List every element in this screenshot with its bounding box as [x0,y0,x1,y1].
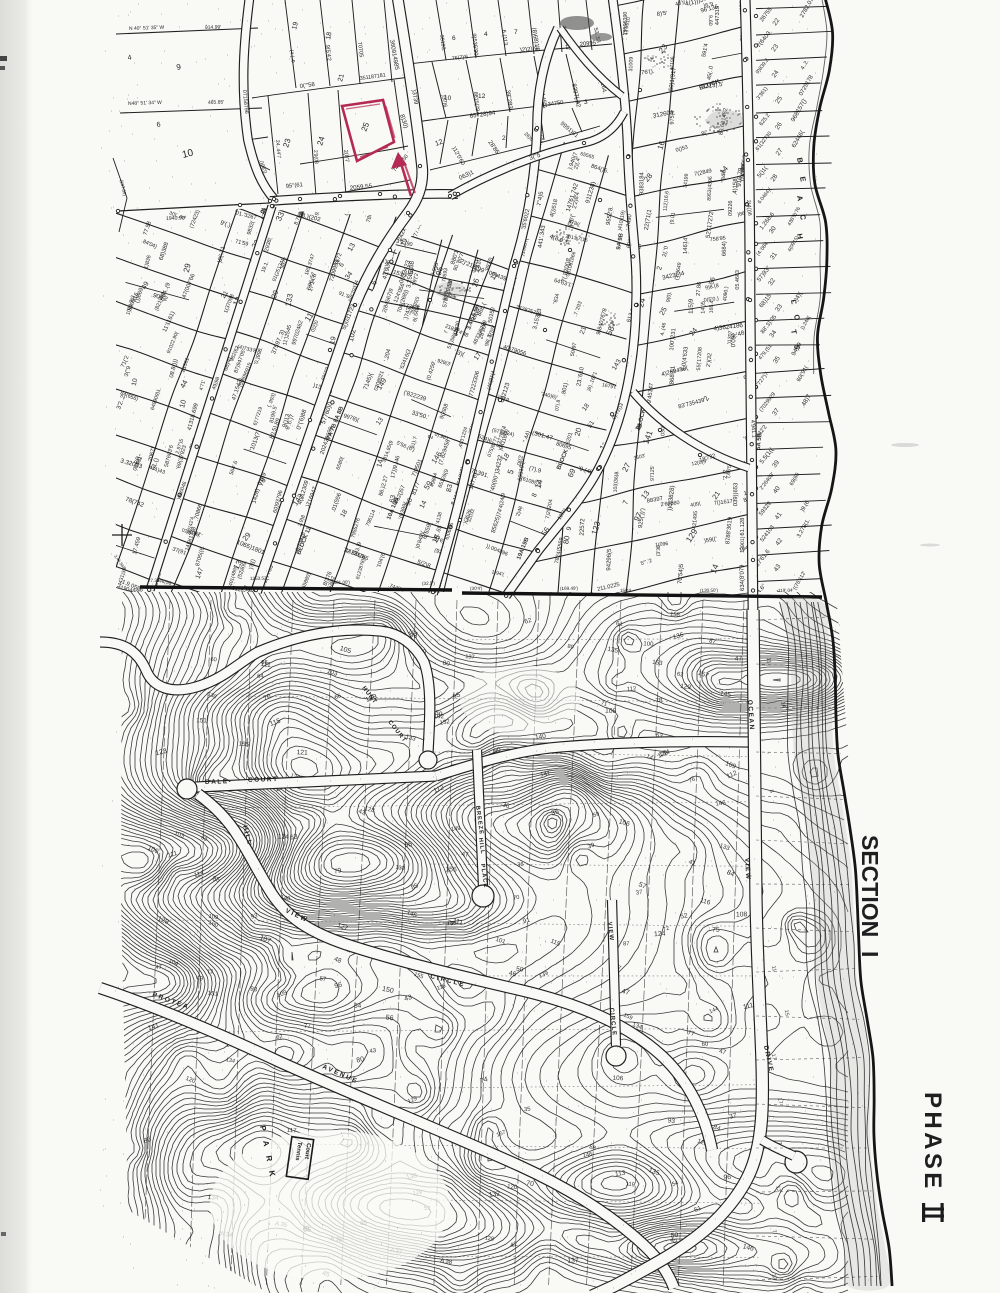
svg-text:97125': 97125' [650,465,656,481]
svg-text:108: 108 [736,911,748,918]
svg-text:47196: 47196 [669,56,676,71]
svg-text:COURT: COURT [248,776,279,784]
svg-text:50: 50 [516,966,525,974]
svg-text:PHASE: PHASE [919,1092,946,1192]
svg-text:60: 60 [210,657,217,663]
svg-text:54: 54 [354,1003,362,1010]
svg-text:I: I [857,951,883,957]
svg-text:155: 155 [238,741,249,749]
svg-text:62: 62 [276,1034,283,1041]
svg-text:151: 151 [196,717,207,724]
svg-text:N 40° 51′ 35″ W: N 40° 51′ 35″ W [129,25,165,32]
svg-text:121: 121 [297,749,309,756]
svg-text:SECTION: SECTION [857,835,883,937]
svg-text:31009: 31009 [628,57,635,72]
svg-text:11: 11 [765,657,772,664]
svg-text:35: 35 [524,1107,532,1114]
svg-text:72: 72 [207,969,214,976]
svg-text:112: 112 [627,686,637,693]
svg-text:0'09(: 0'09( [730,333,737,348]
svg-text:05.4683: 05.4683 [735,270,741,290]
svg-text:(130.50′): (130.50′) [700,588,719,593]
svg-text:155: 155 [445,866,457,873]
svg-text:106: 106 [605,708,617,715]
svg-text:100: 100 [643,640,654,648]
svg-text:94296(5: 94296(5 [606,548,613,571]
svg-text:12: 12 [478,93,486,100]
svg-text:15: 15 [783,1009,790,1016]
svg-text:47: 47 [735,656,743,663]
svg-text:124: 124 [278,833,290,841]
svg-text:17: 17 [776,1097,783,1104]
svg-text:13: 13 [774,1185,781,1192]
svg-text:27.86: 27.86 [696,282,703,297]
svg-text:09''6: 09''6 [708,15,714,26]
svg-text:2: 2 [502,135,506,142]
svg-text:63: 63 [289,833,298,841]
svg-text:039))653: 039))653 [733,482,739,506]
svg-text:61: 61 [616,621,624,628]
svg-text:DALE-: DALE- [205,778,233,786]
svg-text:6684): 6684) [722,241,728,256]
svg-text:96: 96 [723,1174,731,1182]
svg-text:7: 7 [514,29,518,36]
svg-text:11: 11 [770,965,777,972]
svg-text:119′.04′: 119′.04′ [778,588,794,593]
svg-text:111: 111 [260,661,272,669]
svg-text:14.)5: 14.)5 [701,301,707,314]
svg-text:137: 137 [465,654,475,661]
svg-text:10: 10 [444,95,452,102]
svg-text:146: 146 [715,799,727,807]
svg-text:77: 77 [304,1023,312,1030]
svg-text:140: 140 [535,733,547,741]
svg-text:'868.51: '868.51 [668,365,676,386]
svg-text:87: 87 [623,941,630,947]
svg-text:115)9: 115)9 [688,298,695,314]
svg-text:93: 93 [667,1117,676,1125]
svg-text:153: 153 [652,659,664,667]
svg-text:47: 47 [461,851,469,859]
svg-text:130: 130 [395,865,405,872]
svg-text:124: 124 [654,931,666,939]
svg-text:(32.5′): (32.5′) [422,581,435,586]
svg-text:(881.00′): (881.00′) [332,580,351,585]
svg-text:2'9(03: 2'9(03 [312,150,319,165]
svg-text:119: 119 [625,1182,635,1189]
svg-text:09226: 09226 [728,200,734,216]
svg-text:128: 128 [485,1236,495,1243]
svg-text:12: 12 [770,1273,777,1280]
svg-text:80: 80 [561,535,571,545]
svg-text:N48° 51′ 34″ W: N48° 51′ 34″ W [128,100,162,107]
svg-text:55: 55 [404,841,413,849]
svg-text:6: 6 [452,35,456,42]
svg-text:77.34′: 77.34′ [148,578,161,583]
svg-text:150′4: 150′4 [620,588,632,593]
svg-text:75: 75 [712,927,720,934]
svg-text:120: 120 [507,1183,518,1191]
svg-text:914.99′: 914.99′ [205,24,221,31]
svg-text:14614': 14614' [683,237,689,255]
svg-text:(169.49′): (169.49′) [560,586,579,591]
svg-text:634(8'079: 634(8'079 [740,564,746,591]
svg-text:22572: 22572 [579,518,587,536]
svg-text:447315: 447315 [715,6,721,25]
svg-text:56: 56 [385,1014,394,1022]
svg-text:3: 3 [584,99,588,106]
svg-text:1253.52′: 1253.52′ [250,576,268,581]
svg-text:465.85′: 465.85′ [208,99,224,106]
svg-text:47: 47 [155,965,162,971]
svg-text:78: 78 [655,697,663,705]
svg-text:36: 36 [517,862,524,868]
svg-text:8)'5': 8)'5' [657,11,668,18]
svg-text:975(4: 975(4 [670,110,677,124]
svg-text:4: 4 [484,31,488,38]
svg-text:14: 14 [779,701,786,708]
svg-text:137: 137 [567,1257,579,1265]
svg-text:(30′4′): (30′4′) [470,586,483,591]
svg-text:151: 151 [207,990,219,998]
svg-text:60: 60 [701,1042,709,1048]
svg-text:80: 80 [567,644,574,651]
svg-text:61.128: 61.128 [740,517,746,536]
svg-text:106: 106 [612,1075,623,1083]
